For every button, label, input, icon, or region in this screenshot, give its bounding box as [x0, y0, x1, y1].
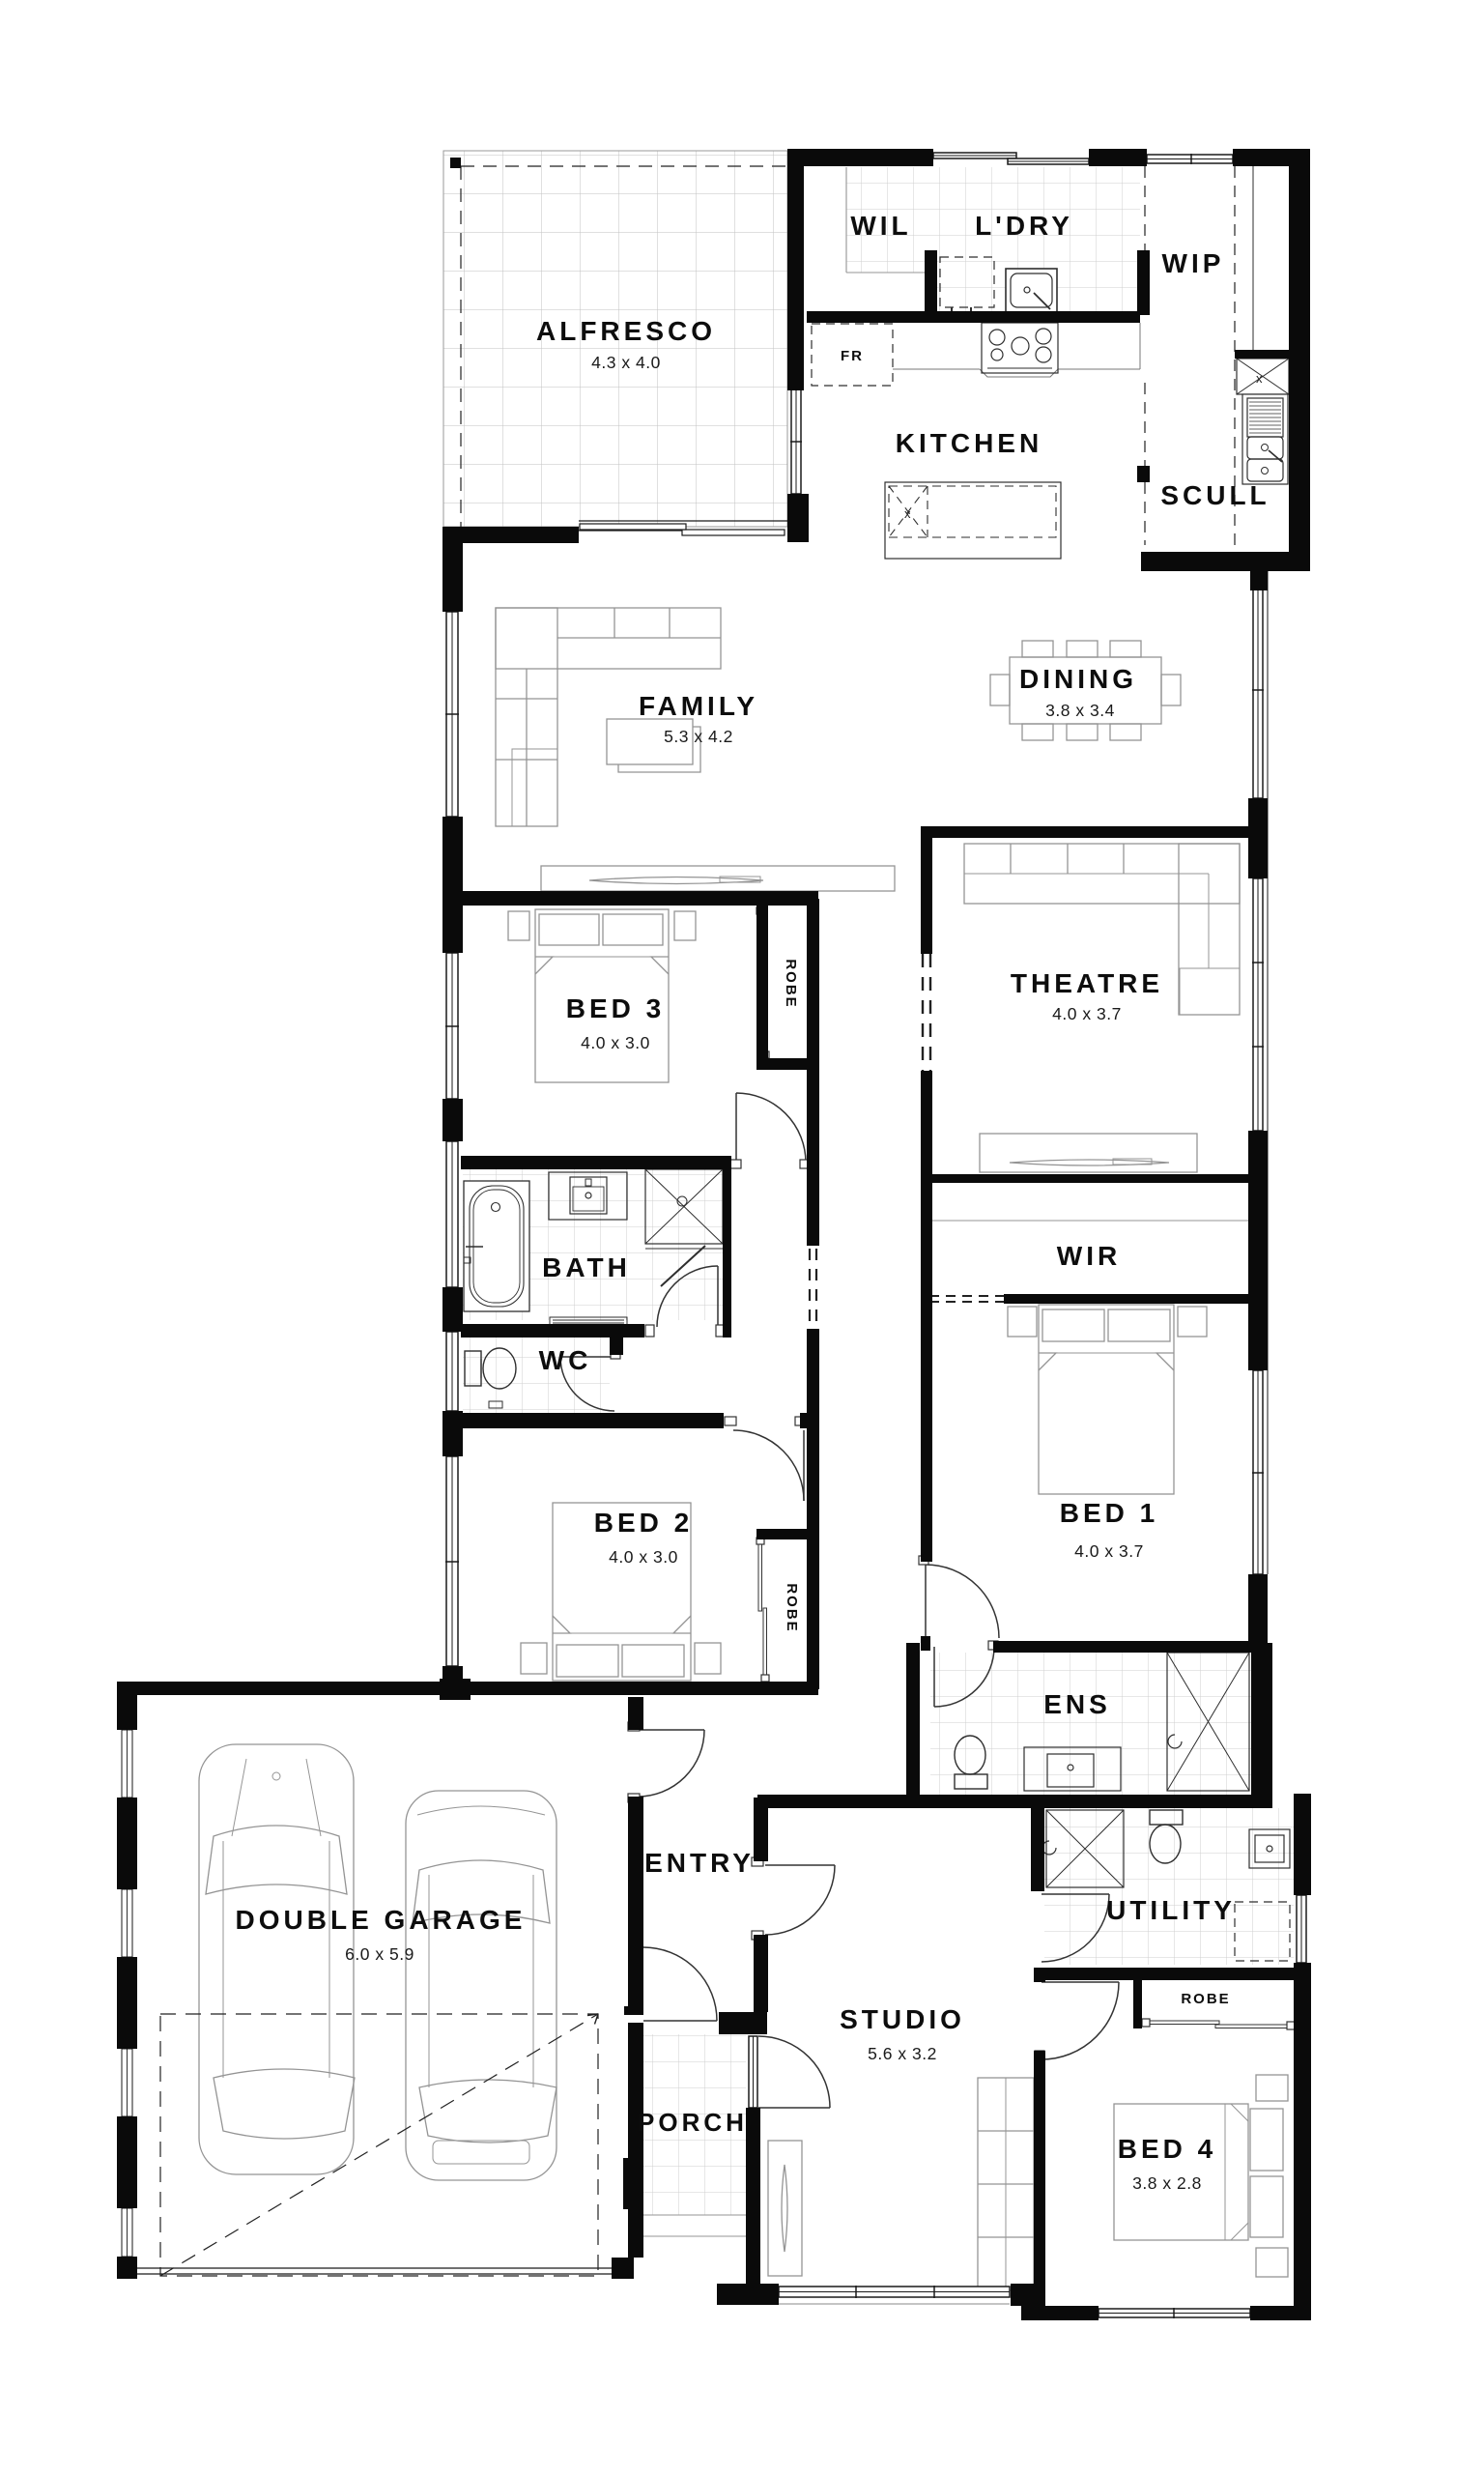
- svg-text:BED 1: BED 1: [1060, 1498, 1158, 1528]
- svg-text:5.3 x 4.2: 5.3 x 4.2: [664, 727, 733, 746]
- svg-text:THEATRE: THEATRE: [1011, 968, 1163, 998]
- svg-text:WIP: WIP: [1162, 248, 1225, 278]
- svg-text:3.8 x 2.8: 3.8 x 2.8: [1132, 2173, 1202, 2193]
- svg-text:x: x: [904, 506, 911, 521]
- svg-text:ROBE: ROBE: [783, 959, 799, 1008]
- svg-text:4.3 x 4.0: 4.3 x 4.0: [591, 353, 661, 372]
- svg-text:FAMILY: FAMILY: [639, 691, 758, 721]
- svg-text:ENTRY: ENTRY: [644, 1848, 755, 1878]
- svg-text:4.0 x 3.7: 4.0 x 3.7: [1052, 1004, 1122, 1023]
- svg-text:4.0 x 3.0: 4.0 x 3.0: [609, 1547, 678, 1567]
- svg-text:BED 2: BED 2: [594, 1508, 693, 1538]
- svg-text:UTILITY: UTILITY: [1106, 1895, 1236, 1925]
- svg-text:DOUBLE GARAGE: DOUBLE GARAGE: [236, 1905, 527, 1935]
- svg-text:SCULL: SCULL: [1160, 480, 1270, 510]
- svg-text:x: x: [1256, 371, 1263, 386]
- svg-text:5.6 x 3.2: 5.6 x 3.2: [868, 2044, 937, 2063]
- svg-text:ROBE: ROBE: [784, 1583, 800, 1632]
- svg-text:ENS: ENS: [1043, 1689, 1111, 1719]
- svg-text:WIR: WIR: [1057, 1241, 1121, 1271]
- svg-text:WIL: WIL: [850, 211, 911, 241]
- svg-text:DINING: DINING: [1019, 664, 1137, 694]
- svg-text:4.0 x 3.7: 4.0 x 3.7: [1074, 1541, 1144, 1561]
- svg-text:STUDIO: STUDIO: [840, 2004, 965, 2034]
- svg-text:L'DRY: L'DRY: [975, 211, 1073, 241]
- svg-text:WC: WC: [539, 1345, 592, 1375]
- svg-text:6.0 x 5.9: 6.0 x 5.9: [345, 1944, 414, 1964]
- svg-text:FR: FR: [841, 348, 864, 364]
- svg-text:4.0 x 3.0: 4.0 x 3.0: [581, 1033, 650, 1052]
- svg-text:BED 4: BED 4: [1118, 2134, 1216, 2164]
- svg-text:ROBE: ROBE: [1181, 1991, 1230, 2007]
- svg-text:3.8 x 3.4: 3.8 x 3.4: [1045, 701, 1115, 720]
- svg-text:BED 3: BED 3: [566, 993, 665, 1023]
- svg-text:PORCH: PORCH: [638, 2108, 748, 2137]
- svg-text:ALFRESCO: ALFRESCO: [536, 316, 716, 346]
- svg-text:BATH: BATH: [542, 1252, 631, 1282]
- svg-text:KITCHEN: KITCHEN: [896, 428, 1042, 458]
